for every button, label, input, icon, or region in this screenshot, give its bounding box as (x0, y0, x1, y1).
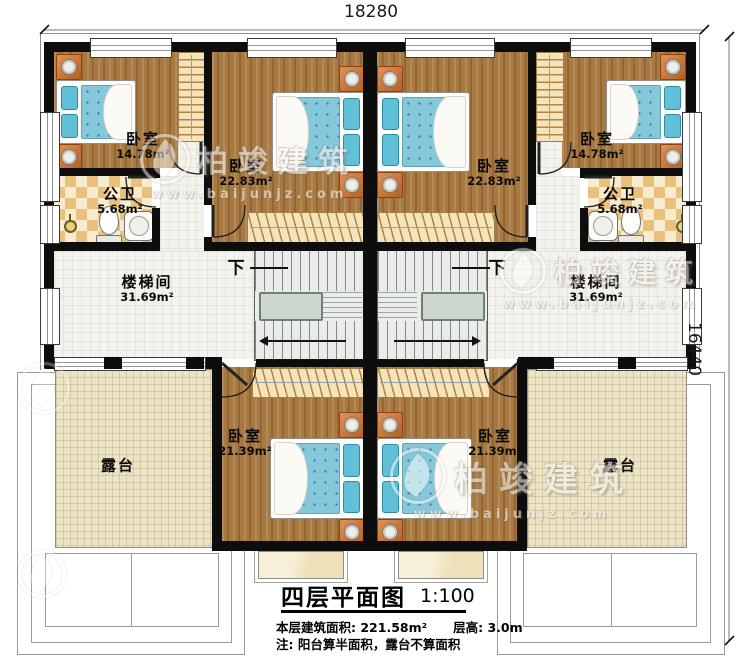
label-stair-down-left: 下 (228, 254, 245, 279)
wall-segment (44, 357, 54, 369)
wall-hall-bottom (377, 359, 484, 367)
staircase-left (254, 248, 365, 361)
shower-head (64, 220, 77, 233)
stair-landing (421, 292, 485, 321)
stair-direction-arrow (394, 340, 472, 342)
window-right (682, 112, 702, 202)
wall-bath-top-left (44, 168, 160, 176)
wall-bedroom-bottom (377, 242, 536, 251)
window-top (90, 38, 172, 58)
label-terrace-left: 露台 (101, 458, 135, 475)
wall-bath-bottom-left (44, 242, 160, 251)
label-bedroom-top-left: 卧室 14.78m² (116, 131, 169, 161)
window-left-bath (40, 205, 60, 244)
pillow (343, 481, 360, 514)
plan-scale: 1:100 (420, 585, 475, 607)
window-top (247, 38, 337, 58)
window-top (405, 38, 495, 58)
pillow (382, 481, 399, 514)
floor-plan-canvas: 18280 16440 (0, 0, 750, 671)
nightstand (339, 172, 365, 198)
wall-pier (186, 357, 204, 369)
pillow (61, 114, 78, 138)
title-underline (281, 610, 466, 613)
window-left (40, 112, 60, 202)
label-stair-right: 楼梯间 31.69m² (569, 274, 622, 304)
label-bedroom-bottom-left: 卧室 21.39m² (218, 428, 271, 458)
stair-flight-upper (255, 249, 364, 291)
wall-pier (104, 357, 122, 369)
blanket (434, 442, 468, 515)
wall-party-center (363, 42, 377, 551)
pillow (382, 134, 399, 166)
pillow (664, 114, 681, 138)
label-stair-left: 楼梯间 31.69m² (120, 274, 173, 304)
nightstand (56, 54, 82, 80)
blanket (433, 96, 466, 168)
wall-interior (528, 42, 536, 205)
window-left-hall (40, 288, 60, 345)
nightstand (377, 172, 403, 198)
stair-flight-upper (378, 249, 487, 291)
wall-bottom (212, 541, 527, 551)
bed-mid-left (272, 92, 365, 172)
label-bedroom-mid-right: 卧室 22.83m² (467, 158, 520, 188)
bed-bottom-left (270, 438, 365, 519)
wall-bath-side (152, 168, 160, 178)
wardrobe-bottom-left (252, 368, 365, 398)
dimension-top: 18280 (344, 2, 398, 22)
label-bedroom-top-right: 卧室 14.78m² (570, 131, 623, 161)
wall-bedroom-bottom (204, 242, 363, 251)
bay-window-left (258, 551, 344, 579)
stair-direction-arrow (268, 340, 346, 342)
roof-panel-divider (611, 554, 612, 626)
stair-landing (259, 292, 323, 321)
stair-down-line (452, 267, 490, 269)
label-bath-left: 公卫 5.68m² (97, 186, 142, 216)
closet-top-left (178, 52, 206, 142)
label-terrace-right: 露台 (603, 458, 637, 475)
stair-rails (378, 292, 417, 321)
pillow (343, 98, 360, 130)
plan-note: 注: 阳台算半面积，露台不算面积 (276, 634, 460, 653)
pillow (382, 98, 399, 130)
roof-panel-right (523, 553, 697, 627)
wall-hall-bottom (256, 359, 363, 367)
closet-top-right (536, 52, 564, 142)
pillow (343, 444, 360, 477)
wall-pier (618, 357, 636, 369)
nightstand (660, 54, 686, 80)
bay-window-right (398, 551, 484, 579)
label-bath-right: 公卫 5.68m² (597, 186, 642, 216)
pillow (61, 86, 78, 110)
hall-left-corridor-b (160, 176, 204, 251)
wardrobe-mid-right (377, 212, 495, 244)
pillow (343, 134, 360, 166)
window-right-bath (682, 205, 702, 244)
wardrobe-mid-left (247, 212, 365, 244)
nightstand (339, 66, 365, 92)
label-bedroom-mid-left: 卧室 22.83m² (219, 158, 272, 188)
wall-bath-bottom-right (580, 242, 696, 251)
plan-storey-height: 层高: 3.0m (453, 617, 523, 636)
pillow (664, 86, 681, 110)
hall-right-corridor-b (536, 176, 580, 251)
nightstand (377, 412, 403, 438)
bed-bottom-right (377, 438, 472, 519)
dimension-right: 16440 (684, 322, 704, 376)
nightstand (339, 412, 365, 438)
stair-rails (323, 292, 362, 321)
wardrobe-bottom-right (377, 368, 490, 398)
roof-panel-divider (131, 554, 132, 626)
stair-down-line (250, 267, 288, 269)
pillow (382, 444, 399, 477)
blanket (276, 96, 309, 168)
plan-title: 四层平面图 (281, 578, 406, 612)
wall-pier (536, 357, 554, 369)
blanket (274, 442, 308, 515)
terrace-door-right (536, 357, 688, 371)
roof-panel-left (45, 553, 219, 627)
wall-bath-top-right (580, 168, 696, 176)
hall-right-main (486, 251, 686, 359)
bed-mid-right (377, 92, 470, 172)
window-top (570, 38, 652, 58)
wall-bath-side (580, 168, 588, 178)
nightstand (377, 66, 403, 92)
terrace-door-left (54, 357, 206, 371)
hall-left-main (54, 251, 254, 359)
label-bedroom-bottom-right: 卧室 21.39m² (468, 428, 521, 458)
wall-interior (204, 42, 212, 205)
label-stair-down-right: 下 (489, 254, 506, 279)
